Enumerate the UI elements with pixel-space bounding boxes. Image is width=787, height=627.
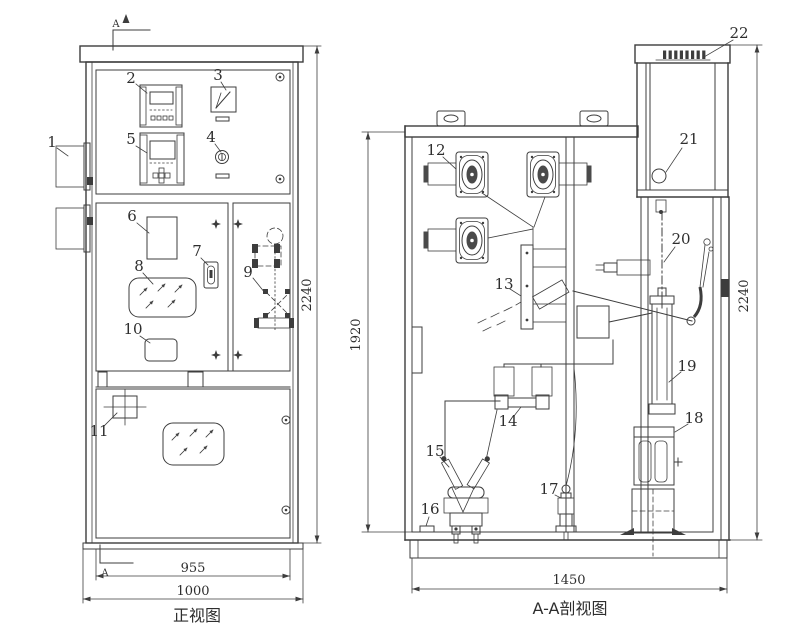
section-view-caption: A-A剖视图 [533,599,608,618]
front-view-caption: 正视图 [173,606,221,625]
callout-9: 9 [243,263,253,281]
callout-7: 7 [192,242,202,260]
dim-section-width: 1450 [552,573,585,588]
door-handle-item7 [204,262,218,288]
floor-bracket-item16 [420,526,434,532]
callout-22: 22 [729,24,748,42]
callout-20: 20 [671,230,690,248]
wall-bracket [412,327,422,373]
callout-13: 13 [494,275,513,293]
disconnector-item13 [478,245,569,331]
callout-5: 5 [126,130,136,148]
middle-left-door [96,203,228,371]
callout-18: 18 [684,409,703,427]
dim-section-outer-height: 2240 [737,279,752,312]
lifting-lug [437,111,465,126]
divider-band [96,371,290,387]
callout-4: 4 [206,128,216,146]
front-dimensions: 955 1000 2240 [83,46,321,603]
switchgear-drawing: A A [0,0,787,627]
front-callouts: 1 2 3 4 5 6 7 8 9 10 11 [47,66,265,440]
lifting-lug [580,111,608,126]
section-marker-top-label: A [111,19,120,30]
screw [276,73,284,81]
bottom-door [96,389,290,538]
interlock-mechanism-item9 [252,228,294,332]
vent-grille-item22 [663,51,705,60]
callout-1: 1 [47,133,57,151]
dim-front-height: 2240 [300,278,315,311]
relay-item5 [140,133,184,185]
knob-item4 [216,151,230,179]
engineering-drawing-page: A A [0,0,787,627]
open-position-phantom [478,302,521,331]
gland-hole-item21 [652,169,666,183]
busbar-supports-item14 [494,367,552,409]
screw [282,416,290,424]
instrument-door [96,70,290,194]
callout-8: 8 [134,257,144,275]
lv-box [635,45,730,197]
section-dimensions: 1920 2240 1450 [349,45,762,593]
callout-17: 17 [539,480,558,498]
relay-item2 [140,85,182,127]
section-callouts: 12 13 14 15 16 17 18 19 20 21 22 [420,24,748,526]
meter-item3 [211,87,236,121]
dim-front-outer-width: 1000 [176,584,209,599]
dim-front-inner-width: 955 [181,561,206,576]
wall-linkage [687,239,729,325]
callout-15: 15 [425,442,444,460]
vent-window [163,423,224,465]
nameplate-item6 [147,217,177,259]
screw [282,506,290,514]
section-marker-top: A [111,14,150,50]
callout-14: 14 [498,412,517,430]
post-insulator [577,306,609,338]
cable-bushings-item1 [56,143,90,252]
section-marker-bottom-label: A [100,568,109,579]
section-marker-bottom: A [100,545,133,579]
socket-item10 [145,339,177,361]
screw [276,175,284,183]
callout-3: 3 [213,66,223,84]
middle-right-door [233,203,294,371]
mechanism-item18 [620,427,686,556]
mid-bushing-and-rod [596,200,666,308]
front-view: A A [47,14,321,625]
callout-21: 21 [679,130,698,148]
observation-window-item8 [129,278,196,317]
front-cabinet-outline [80,46,303,549]
callout-19: 19 [677,357,696,375]
callout-11: 11 [89,422,108,440]
dim-section-inner-height: 1920 [349,318,364,351]
callout-16: 16 [420,500,439,518]
callout-10: 10 [123,320,142,338]
callout-6: 6 [127,207,137,225]
voltage-transformer-item15 [439,455,492,543]
callout-12: 12 [426,141,445,159]
section-view: 1920 2240 1450 A-A剖视图 12 13 14 15 16 17 … [349,24,762,618]
callout-2: 2 [126,69,136,87]
